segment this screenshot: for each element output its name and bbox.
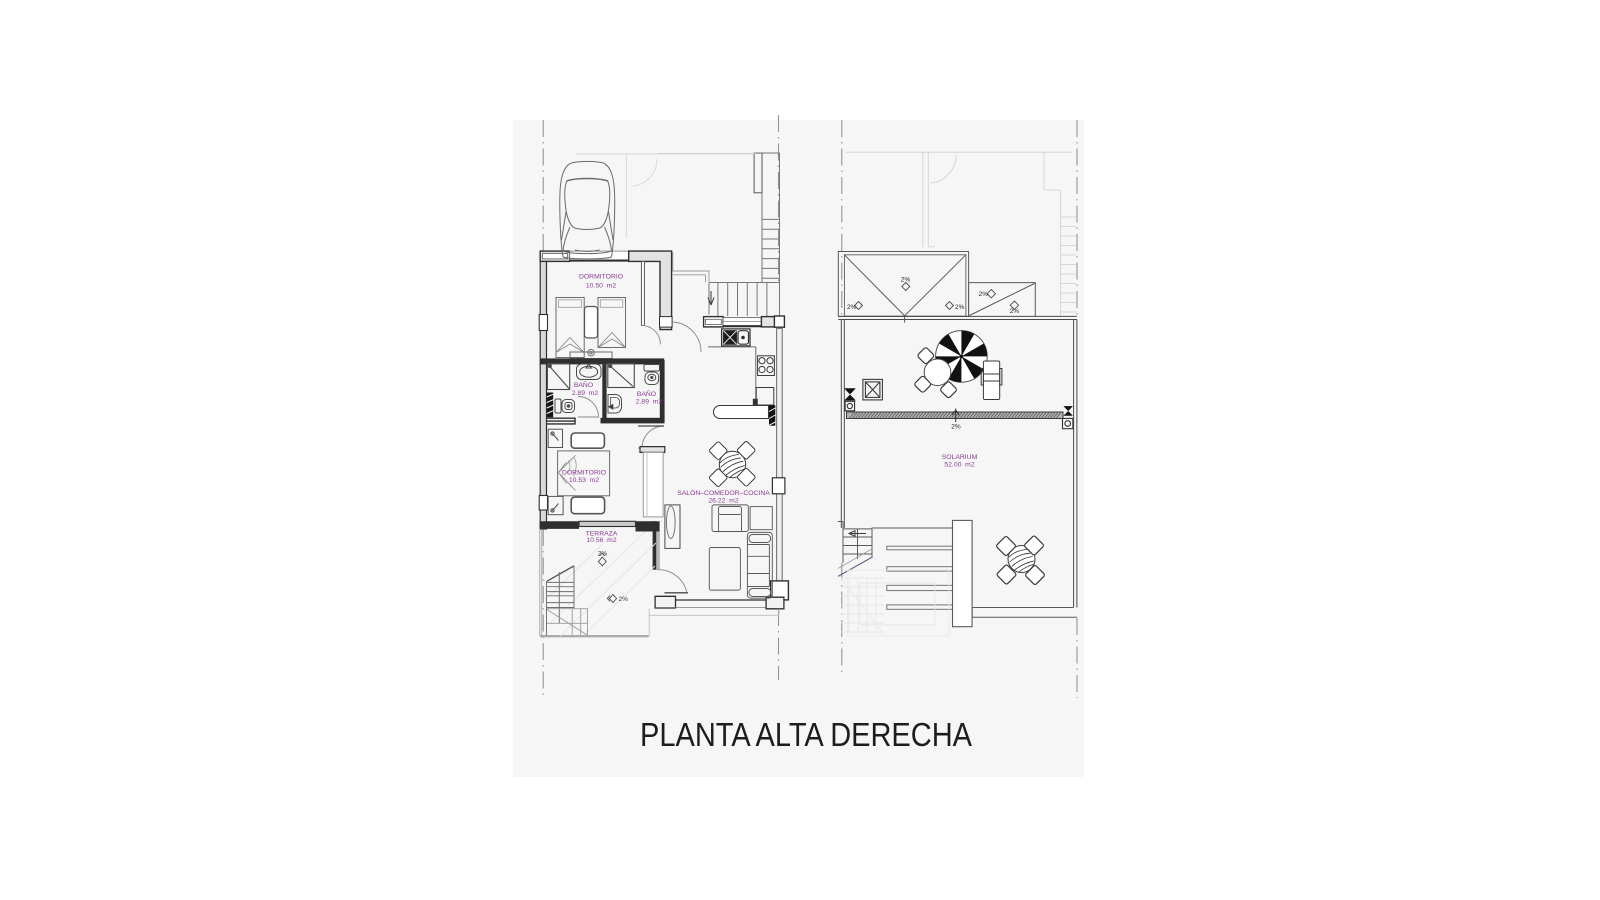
svg-text:10.56 m2: 10.56 m2 <box>586 537 616 544</box>
svg-text:2.89 m2: 2.89 m2 <box>572 390 599 397</box>
svg-text:10.50 m2: 10.50 m2 <box>586 282 616 289</box>
svg-text:2%: 2% <box>847 304 857 311</box>
svg-text:2%: 2% <box>979 291 989 298</box>
svg-text:2%: 2% <box>598 551 608 558</box>
svg-text:10.53 m2: 10.53 m2 <box>569 477 599 484</box>
svg-text:DORMITORIO: DORMITORIO <box>562 469 606 476</box>
svg-text:2%: 2% <box>1010 308 1020 315</box>
svg-text:2%: 2% <box>619 596 629 603</box>
svg-text:PLANTA ALTA DERECHA: PLANTA ALTA DERECHA <box>640 716 972 753</box>
svg-text:2%: 2% <box>951 424 961 431</box>
svg-text:26.22 m2: 26.22 m2 <box>708 497 738 504</box>
svg-text:BAÑO: BAÑO <box>574 380 593 389</box>
svg-text:52.00 m2: 52.00 m2 <box>944 461 974 468</box>
svg-text:2%: 2% <box>901 277 911 284</box>
svg-text:SALÓN–COMEDOR–COCINA: SALÓN–COMEDOR–COCINA <box>677 488 770 497</box>
svg-text:2%: 2% <box>955 304 965 311</box>
svg-text:DORMITORIO: DORMITORIO <box>579 274 623 281</box>
svg-text:BAÑO: BAÑO <box>637 389 656 398</box>
svg-text:SOLARIUM: SOLARIUM <box>942 454 978 461</box>
svg-text:2.89 m2: 2.89 m2 <box>636 398 663 405</box>
